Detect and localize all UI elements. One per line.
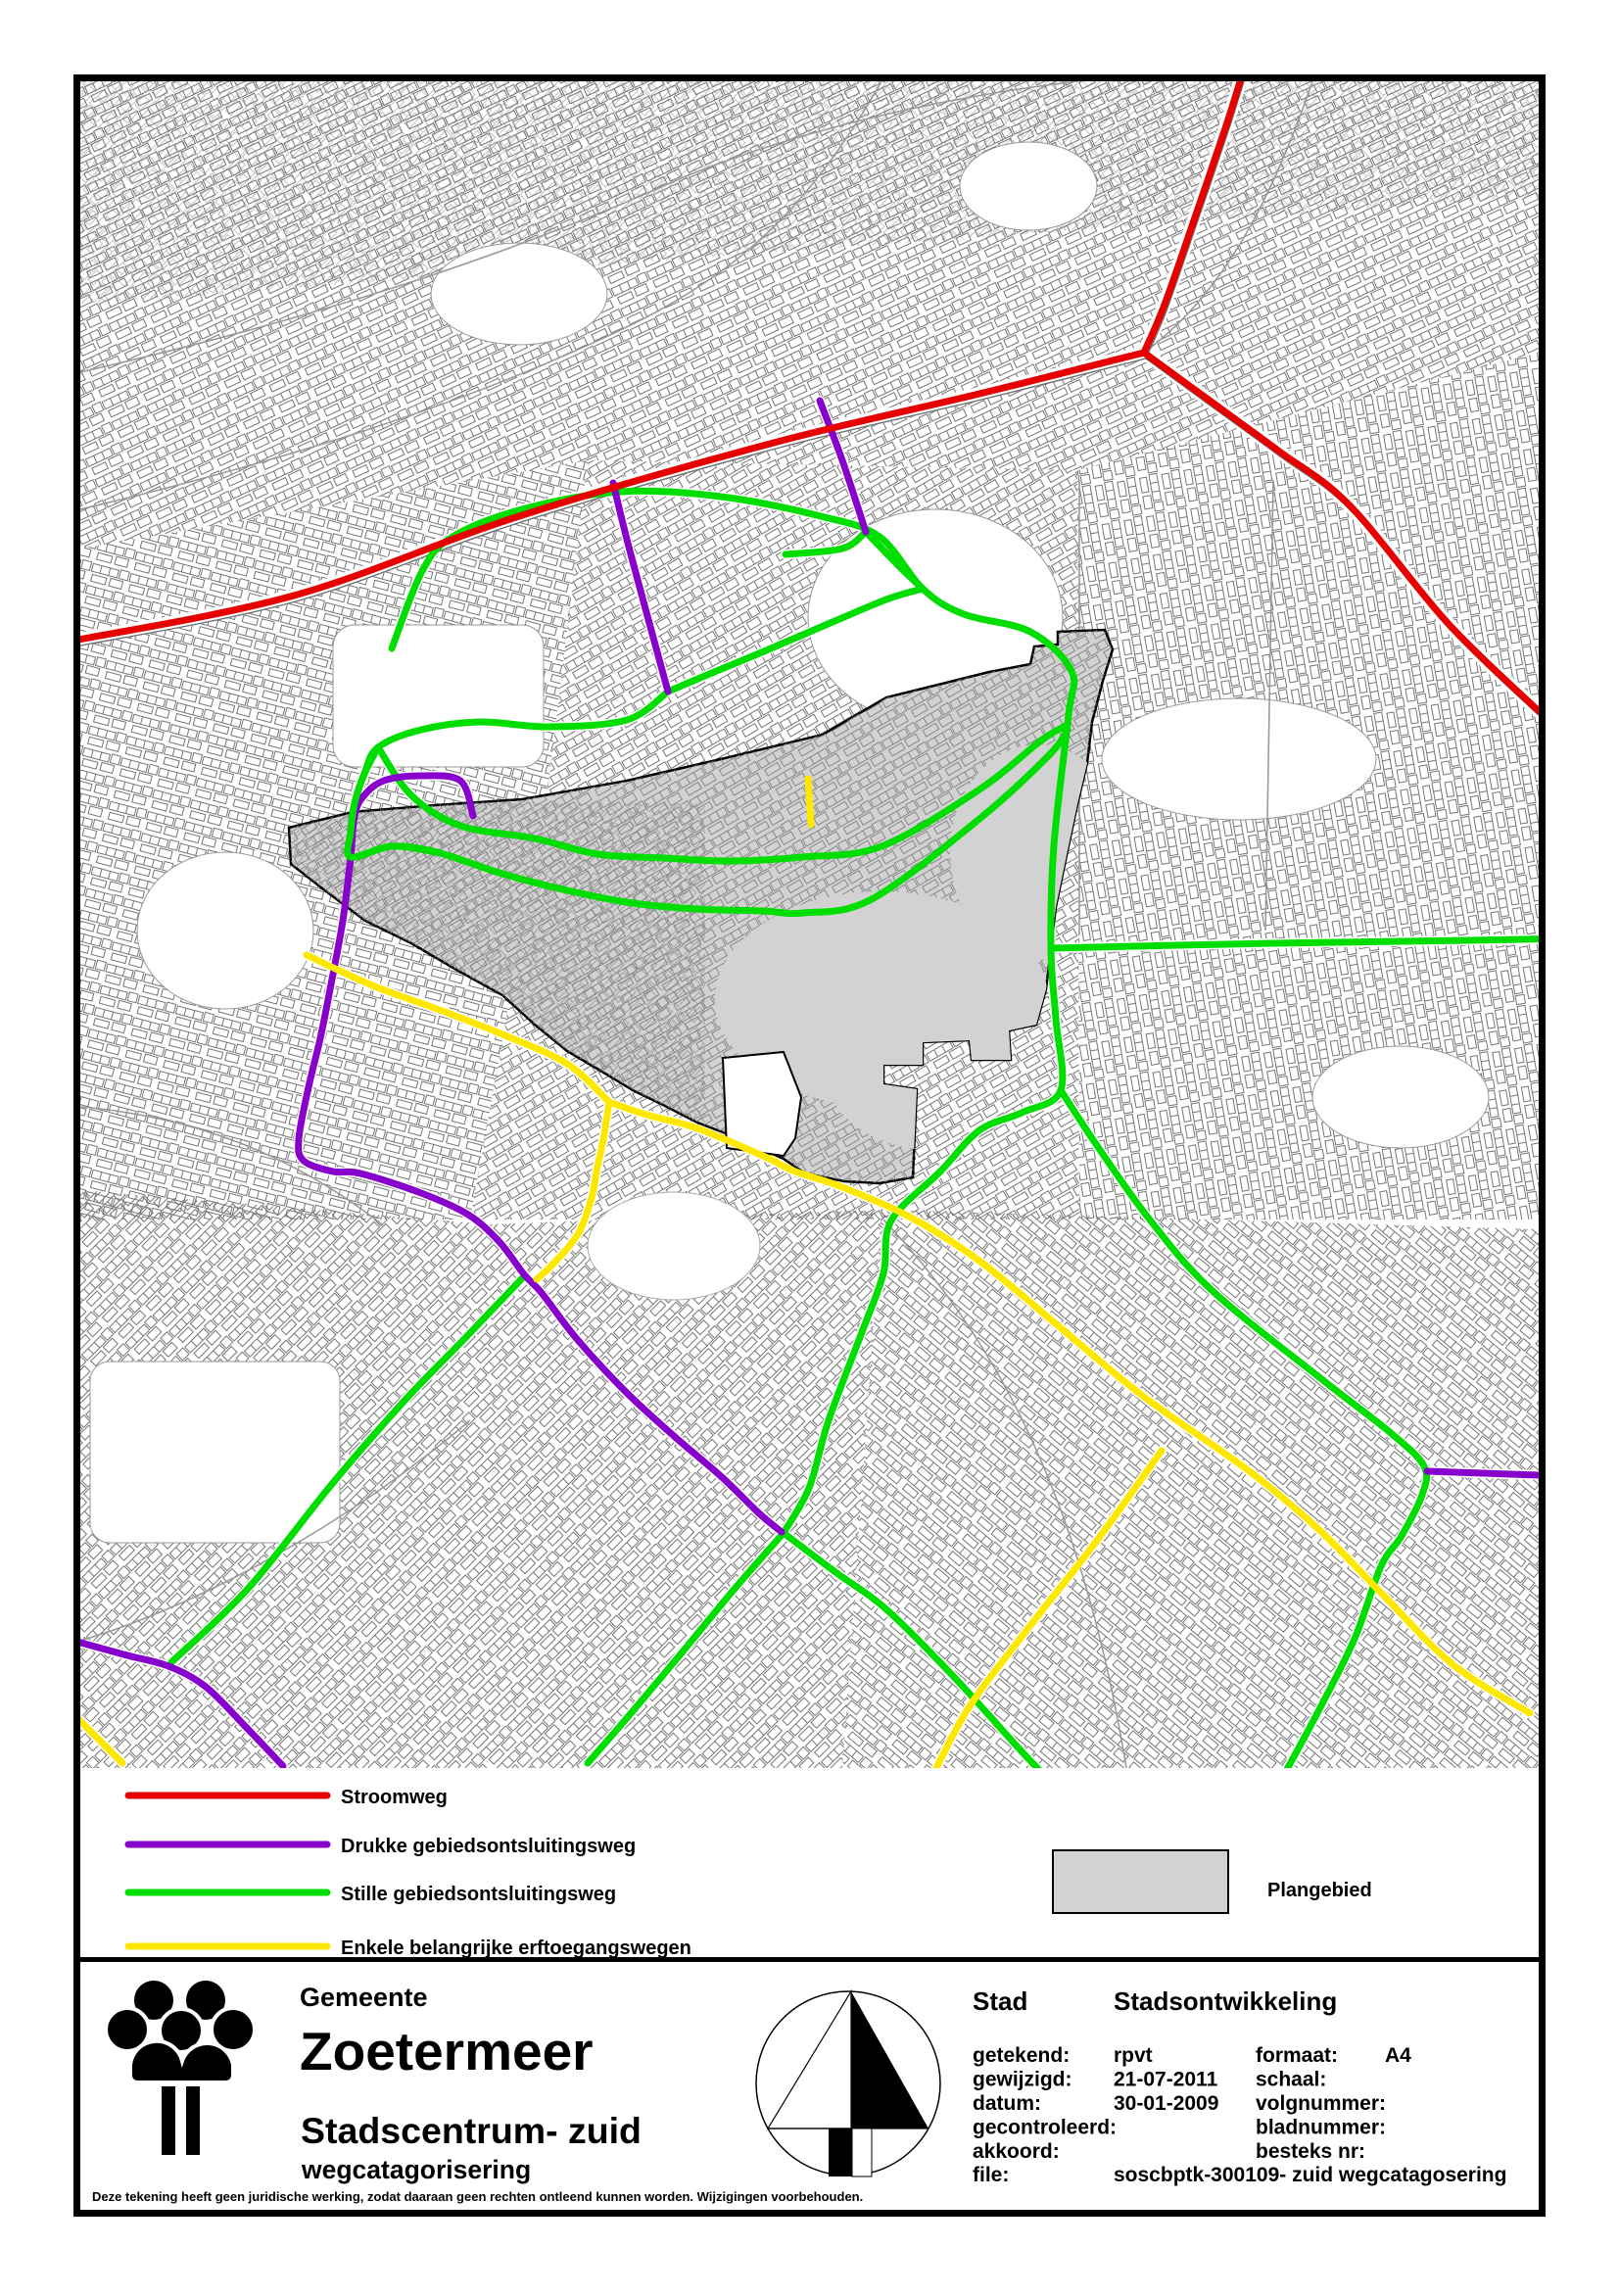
svg-text:gecontroleerd:: gecontroleerd: [973, 2117, 1117, 2139]
svg-text:Stadscentrum- zuid: Stadscentrum- zuid [301, 2110, 642, 2151]
svg-text:21-07-2011: 21-07-2011 [1114, 2069, 1218, 2091]
svg-text:Stille gebiedsontsluitingsweg: Stille gebiedsontsluitingsweg [341, 1884, 616, 1905]
svg-text:besteks nr:: besteks nr: [1256, 2140, 1365, 2163]
svg-text:Gemeente: Gemeente [300, 1983, 428, 2012]
svg-text:wegcatagorisering: wegcatagorisering [301, 2155, 531, 2184]
svg-text:Zoetermeer: Zoetermeer [300, 2021, 594, 2081]
svg-text:rpvt: rpvt [1114, 2044, 1153, 2067]
svg-text:datum:: datum: [973, 2092, 1041, 2115]
svg-text:Drukke gebiedsontsluitingsweg: Drukke gebiedsontsluitingsweg [341, 1836, 636, 1857]
svg-text:gewijzigd:: gewijzigd: [973, 2069, 1072, 2091]
svg-text:Plangebied: Plangebied [1267, 1880, 1372, 1901]
svg-text:Stad: Stad [973, 1986, 1027, 2016]
svg-text:getekend:: getekend: [973, 2044, 1070, 2067]
svg-text:Enkele belangrijke erftoegangs: Enkele belangrijke erftoegangswegen [341, 1937, 691, 1959]
svg-text:file:: file: [973, 2164, 1009, 2186]
svg-text:30-01-2009: 30-01-2009 [1114, 2092, 1218, 2115]
svg-text:akkoord:: akkoord: [973, 2140, 1060, 2163]
svg-text:Stroomweg: Stroomweg [341, 1787, 448, 1808]
svg-text:Stadsontwikkeling: Stadsontwikkeling [1114, 1986, 1337, 2016]
svg-text:Deze tekening heeft geen jurid: Deze tekening heeft geen juridische werk… [92, 2189, 863, 2204]
svg-text:bladnummer:: bladnummer: [1256, 2117, 1386, 2139]
svg-text:soscbptk-300109- zuid wegcatag: soscbptk-300109- zuid wegcatagosering [1114, 2164, 1506, 2186]
svg-text:volgnummer:: volgnummer: [1256, 2092, 1386, 2115]
svg-text:formaat:: formaat: [1256, 2044, 1338, 2067]
svg-text:schaal:: schaal: [1256, 2069, 1326, 2091]
svg-text:A4: A4 [1385, 2044, 1411, 2067]
